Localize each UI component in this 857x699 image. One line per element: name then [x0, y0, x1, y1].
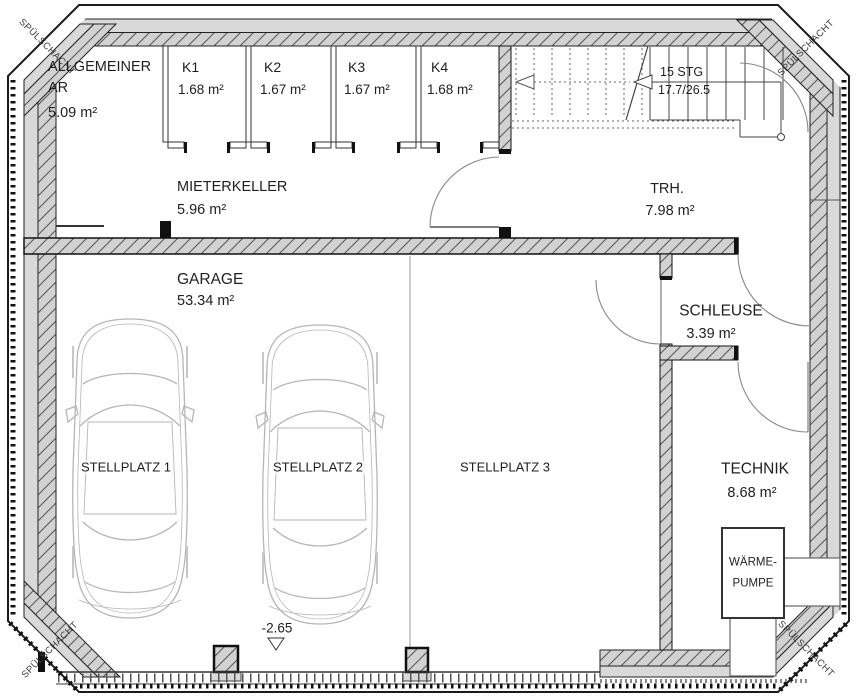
staircase — [512, 46, 785, 141]
heat-pump-duct-right — [784, 558, 840, 606]
column — [406, 648, 428, 672]
stair-direction-arrow — [634, 75, 652, 89]
room-label-k2: K2 — [264, 60, 281, 74]
heat-pump-unit — [722, 528, 784, 618]
room-area-garage: 53.34 m² — [177, 294, 234, 309]
room-area-trh: 7.98 m² — [645, 204, 694, 219]
room-label-schleuse: SCHLEUSE — [679, 303, 763, 319]
room-label-trh: TRH. — [650, 182, 684, 197]
room-area-k3: 1.67 m² — [344, 83, 390, 97]
heat-pump-duct-bottom — [730, 618, 776, 676]
room-label-allgemeiner-ar-line1: ALLGEMEINER — [48, 60, 151, 75]
stair-count-label: 15 STG — [660, 66, 703, 79]
room-label-allgemeiner-ar-line2: AR — [48, 81, 68, 96]
parking-label-1: STELLPLATZ 1 — [79, 461, 173, 474]
room-label-k4: K4 — [431, 60, 448, 74]
level-marker: -2.65 — [262, 621, 293, 635]
room-area-k2: 1.67 m² — [260, 83, 306, 97]
level-marker-triangle — [268, 638, 284, 650]
column — [214, 646, 238, 672]
room-area-k4: 1.68 m² — [427, 83, 473, 97]
heat-pump-label-line1: WÄRME- — [729, 557, 777, 569]
room-area-k1: 1.68 m² — [178, 83, 224, 97]
heat-pump-label-line2: PUMPE — [733, 578, 774, 590]
room-label-mieterkeller: MIETERKELLER — [177, 180, 287, 195]
room-area-technik: 8.68 m² — [727, 486, 776, 501]
room-label-technik: TECHNIK — [721, 461, 789, 477]
floorplan-linework — [0, 0, 857, 699]
parking-label-3: STELLPLATZ 3 — [458, 461, 552, 474]
mid-wall — [24, 238, 738, 254]
room-label-garage: GARAGE — [177, 272, 243, 288]
parking-label-2: STELLPLATZ 2 — [271, 461, 365, 474]
floorplan-canvas: SPÜLSCHACHT SPÜLSCHACHT SPÜLSCHACHT SPÜL… — [0, 0, 857, 699]
room-label-k1: K1 — [182, 60, 199, 74]
stair-dimension-label: 17.7/26.5 — [658, 84, 710, 97]
stair-direction-arrow — [516, 75, 534, 89]
room-label-k3: K3 — [348, 60, 365, 74]
room-area-schleuse: 3.39 m² — [686, 327, 735, 342]
room-area-allgemeiner-ar: 5.09 m² — [48, 106, 97, 121]
room-area-mieterkeller: 5.96 m² — [177, 203, 226, 218]
car-stellplatz-2 — [256, 325, 384, 624]
